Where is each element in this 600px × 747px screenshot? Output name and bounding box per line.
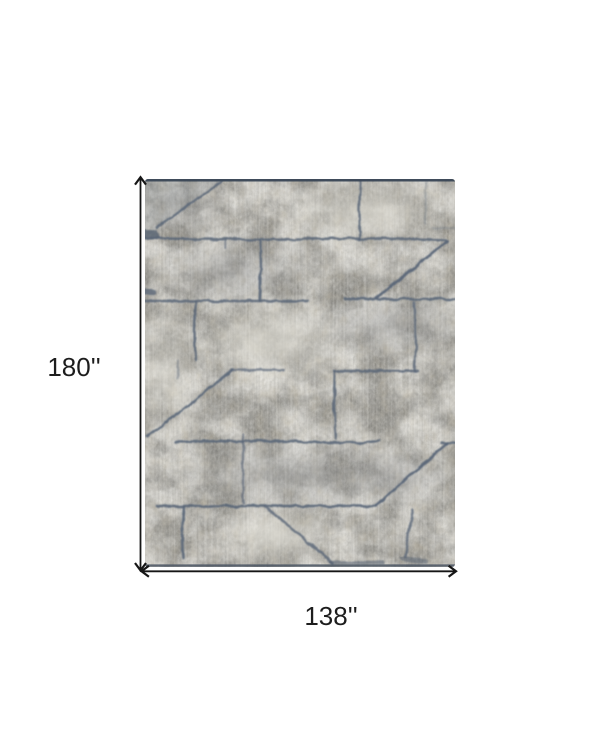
- svg-text:180'': 180'': [47, 352, 100, 382]
- svg-text:138'': 138'': [304, 601, 357, 631]
